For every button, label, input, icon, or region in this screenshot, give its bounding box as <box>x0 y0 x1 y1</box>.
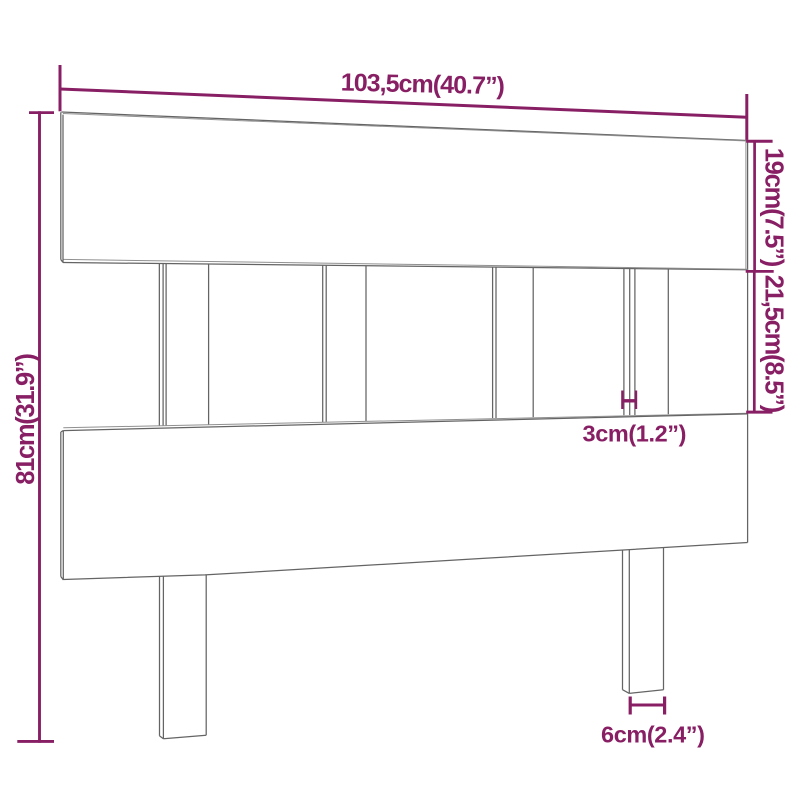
svg-text:81cm(31.9”): 81cm(31.9”) <box>12 354 40 485</box>
svg-text:6cm(2.4”): 6cm(2.4”) <box>601 721 705 747</box>
svg-text:3cm(1.2”): 3cm(1.2”) <box>583 420 687 446</box>
svg-text:19cm(7.5”): 19cm(7.5”) <box>759 148 787 267</box>
svg-text:21,5cm(8.5”): 21,5cm(8.5”) <box>759 275 787 413</box>
svg-text:103,5cm(40.7”): 103,5cm(40.7”) <box>340 69 504 101</box>
